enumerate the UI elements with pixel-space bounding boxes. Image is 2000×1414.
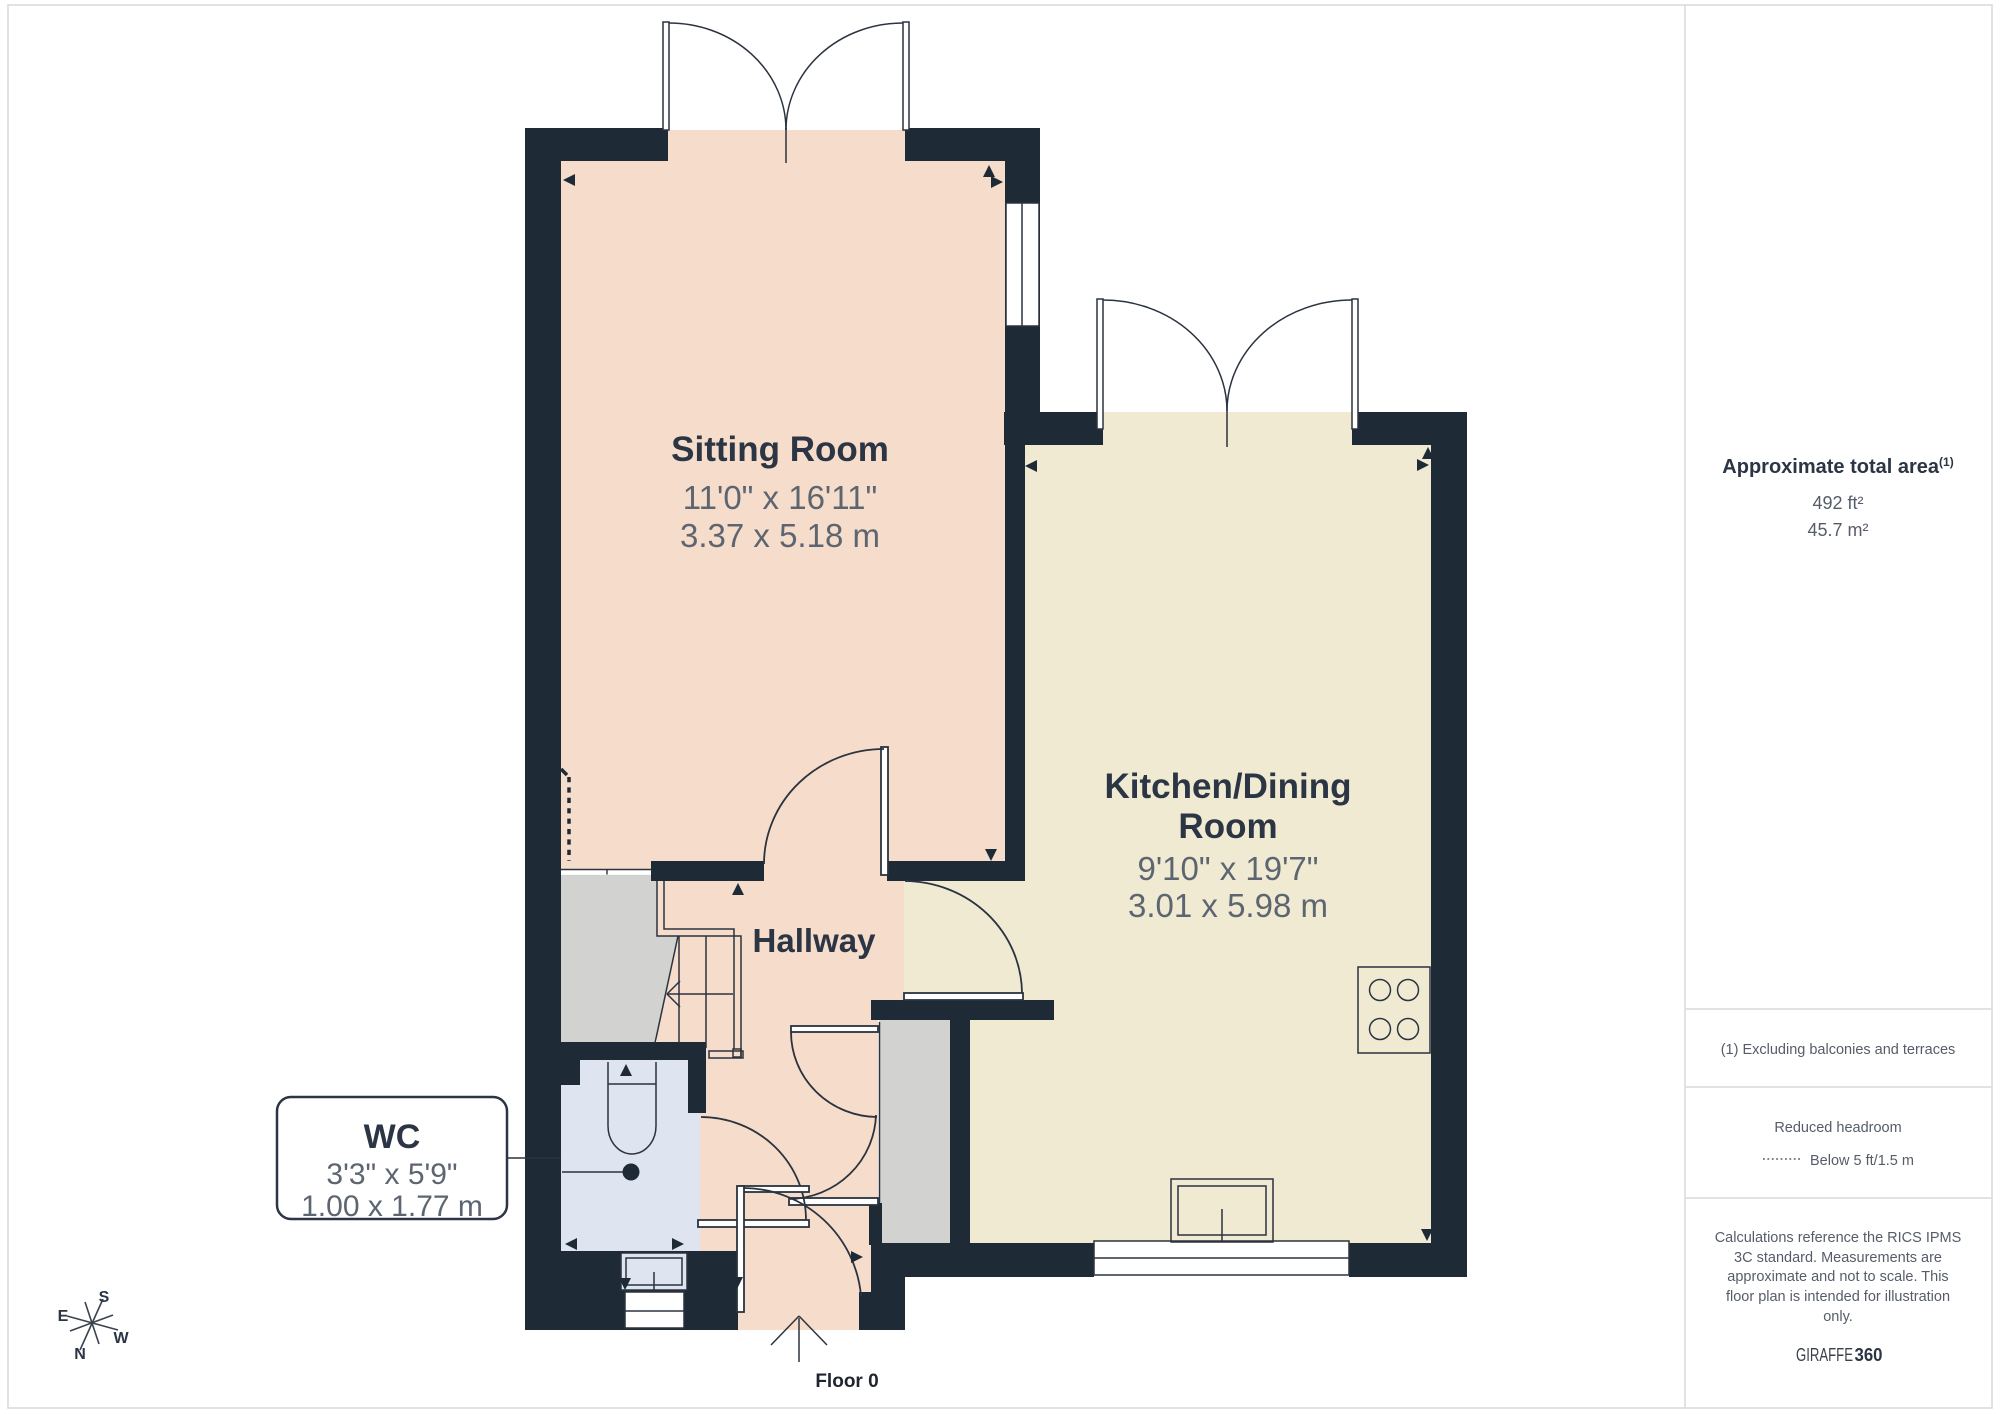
svg-text:Approximate total area(1): Approximate total area(1) <box>1722 455 1953 478</box>
svg-text:E: E <box>58 1308 69 1325</box>
svg-text:3.01 x 5.98 m: 3.01 x 5.98 m <box>1128 887 1328 924</box>
svg-text:(1) Excluding balconies and te: (1) Excluding balconies and terraces <box>1721 1042 1956 1058</box>
svg-text:45.7 m²: 45.7 m² <box>1807 520 1868 540</box>
svg-text:3'3" x 5'9": 3'3" x 5'9" <box>326 1158 457 1191</box>
svg-text:Kitchen/Dining: Kitchen/Dining <box>1105 767 1352 806</box>
svg-text:Below 5 ft/1.5 m: Below 5 ft/1.5 m <box>1810 1153 1914 1169</box>
svg-text:9'10" x 19'7": 9'10" x 19'7" <box>1138 850 1319 887</box>
svg-text:WC: WC <box>364 1118 421 1156</box>
svg-text:Reduced headroom: Reduced headroom <box>1774 1120 1901 1136</box>
svg-text:Hallway: Hallway <box>753 922 877 959</box>
svg-text:N: N <box>74 1346 86 1363</box>
svg-text:3.37 x 5.18 m: 3.37 x 5.18 m <box>680 517 880 554</box>
svg-text:1.00 x 1.77 m: 1.00 x 1.77 m <box>301 1190 483 1223</box>
svg-text:3C standard. Measurements are: 3C standard. Measurements are <box>1734 1250 1942 1266</box>
svg-text:S: S <box>99 1289 110 1306</box>
svg-text:Room: Room <box>1178 807 1277 846</box>
svg-text:Sitting Room: Sitting Room <box>671 430 889 469</box>
svg-text:Calculations reference the RIC: Calculations reference the RICS IPMS <box>1715 1230 1962 1246</box>
svg-text:11'0" x 16'11": 11'0" x 16'11" <box>683 479 877 516</box>
svg-text:GIRAFFE: GIRAFFE <box>1796 1345 1853 1365</box>
svg-text:Floor 0: Floor 0 <box>815 1371 878 1392</box>
svg-text:approximate and not to scale.: approximate and not to scale. This <box>1727 1269 1948 1285</box>
svg-text:W: W <box>113 1330 129 1347</box>
svg-text:only.: only. <box>1823 1309 1853 1325</box>
svg-text:floor plan is intended for ill: floor plan is intended for illustration <box>1726 1289 1950 1305</box>
svg-text:492 ft²: 492 ft² <box>1812 493 1863 513</box>
svg-text:360: 360 <box>1855 1345 1883 1365</box>
